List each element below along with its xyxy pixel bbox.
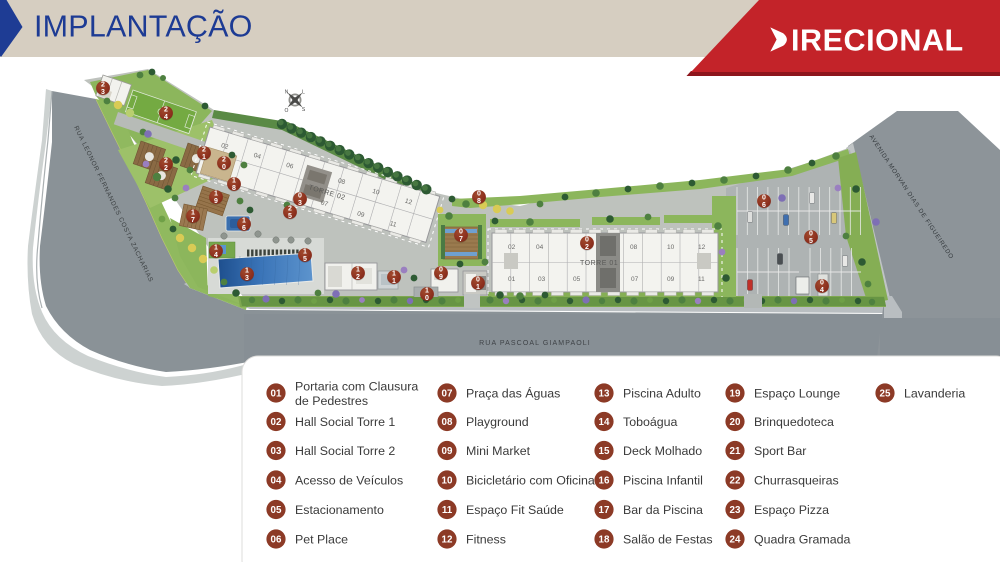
- svg-text:Piscina Infantil: Piscina Infantil: [623, 473, 703, 487]
- svg-text:8: 8: [477, 198, 481, 205]
- svg-text:10: 10: [442, 475, 453, 486]
- svg-text:IMPLANTAÇÃO: IMPLANTAÇÃO: [34, 9, 253, 44]
- svg-text:Espaço Pizza: Espaço Pizza: [754, 503, 829, 517]
- svg-text:1: 1: [303, 249, 307, 256]
- svg-text:1: 1: [214, 245, 218, 252]
- svg-text:2: 2: [202, 147, 206, 154]
- svg-text:2: 2: [164, 158, 168, 165]
- svg-text:17: 17: [599, 505, 610, 516]
- svg-text:IRECIONAL: IRECIONAL: [791, 24, 964, 58]
- svg-text:16: 16: [599, 475, 610, 486]
- svg-text:5: 5: [288, 213, 292, 220]
- svg-text:1: 1: [191, 210, 195, 217]
- svg-text:21: 21: [730, 446, 741, 457]
- svg-text:19: 19: [730, 388, 741, 399]
- svg-text:4: 4: [214, 252, 218, 259]
- svg-text:Quadra Gramada: Quadra Gramada: [754, 532, 851, 546]
- svg-text:5: 5: [303, 256, 307, 263]
- svg-text:2: 2: [101, 82, 105, 89]
- svg-text:10: 10: [667, 244, 675, 251]
- svg-text:Churrasqueiras: Churrasqueiras: [754, 473, 839, 487]
- svg-text:11: 11: [698, 276, 705, 283]
- svg-text:1: 1: [232, 178, 236, 185]
- svg-text:de Pedestres: de Pedestres: [295, 394, 368, 408]
- svg-text:0: 0: [762, 195, 766, 202]
- svg-text:3: 3: [101, 89, 105, 96]
- svg-text:Sport Bar: Sport Bar: [754, 444, 806, 458]
- svg-text:24: 24: [730, 534, 741, 545]
- svg-text:01: 01: [271, 388, 282, 399]
- svg-text:03: 03: [271, 446, 282, 457]
- svg-text:07: 07: [442, 388, 453, 399]
- svg-text:0: 0: [820, 280, 824, 287]
- svg-text:04: 04: [271, 475, 282, 486]
- svg-text:2: 2: [164, 165, 168, 172]
- svg-text:7: 7: [191, 217, 195, 224]
- svg-text:Bicicletário com Oficina: Bicicletário com Oficina: [466, 473, 595, 487]
- svg-text:9: 9: [439, 274, 443, 281]
- svg-text:Acesso de Veículos: Acesso de Veículos: [295, 473, 403, 487]
- svg-text:1: 1: [245, 268, 249, 275]
- svg-text:20: 20: [730, 417, 741, 428]
- svg-text:2: 2: [585, 244, 589, 251]
- svg-text:Espaço Fit Saúde: Espaço Fit Saúde: [466, 503, 564, 517]
- svg-text:01: 01: [508, 276, 516, 283]
- svg-text:Salão de Festas: Salão de Festas: [623, 532, 713, 546]
- svg-text:5: 5: [809, 238, 813, 245]
- svg-text:Toboágua: Toboágua: [623, 415, 678, 429]
- svg-text:1: 1: [214, 191, 218, 198]
- svg-text:Pet Place: Pet Place: [295, 532, 348, 546]
- svg-text:6: 6: [242, 225, 246, 232]
- svg-text:2: 2: [164, 107, 168, 114]
- svg-text:0: 0: [425, 295, 429, 302]
- svg-text:RUA PASCOAL GIAMPAOLI: RUA PASCOAL GIAMPAOLI: [479, 340, 591, 347]
- svg-text:Bar da Piscina: Bar da Piscina: [623, 503, 703, 517]
- svg-text:0: 0: [476, 277, 480, 284]
- svg-text:Hall Social Torre 1: Hall Social Torre 1: [295, 415, 395, 429]
- svg-text:7: 7: [459, 236, 463, 243]
- svg-text:1: 1: [392, 271, 396, 278]
- svg-text:Playground: Playground: [466, 415, 529, 429]
- svg-text:07: 07: [631, 276, 639, 283]
- svg-text:08: 08: [442, 417, 453, 428]
- svg-text:1: 1: [425, 288, 429, 295]
- svg-text:22: 22: [730, 475, 741, 486]
- svg-text:Piscina Adulto: Piscina Adulto: [623, 386, 701, 400]
- svg-text:Estacionamento: Estacionamento: [295, 503, 384, 517]
- svg-text:1: 1: [202, 154, 206, 161]
- svg-text:1: 1: [392, 278, 396, 285]
- svg-text:14: 14: [599, 417, 610, 428]
- svg-text:23: 23: [730, 505, 741, 516]
- svg-text:Praça das Águas: Praça das Águas: [466, 385, 560, 400]
- svg-text:13: 13: [599, 388, 610, 399]
- svg-text:0: 0: [477, 191, 481, 198]
- svg-text:09: 09: [667, 276, 675, 283]
- svg-text:1: 1: [356, 267, 360, 274]
- svg-text:Mini Market: Mini Market: [466, 444, 531, 458]
- svg-text:12: 12: [442, 534, 453, 545]
- svg-text:Brinquedoteca: Brinquedoteca: [754, 415, 834, 429]
- svg-text:04: 04: [536, 244, 544, 251]
- svg-text:Espaço Lounge: Espaço Lounge: [754, 386, 840, 400]
- svg-text:N: N: [285, 90, 289, 96]
- svg-text:0: 0: [809, 231, 813, 238]
- svg-text:1: 1: [476, 284, 480, 291]
- svg-text:2: 2: [356, 274, 360, 281]
- svg-text:05: 05: [573, 276, 581, 283]
- svg-text:15: 15: [599, 446, 610, 457]
- svg-text:4: 4: [820, 287, 824, 294]
- svg-text:8: 8: [232, 185, 236, 192]
- svg-text:06: 06: [271, 534, 282, 545]
- svg-text:02: 02: [271, 417, 282, 428]
- svg-text:Deck Molhado: Deck Molhado: [623, 444, 702, 458]
- svg-text:1: 1: [242, 218, 246, 225]
- svg-text:L: L: [302, 90, 305, 96]
- svg-text:9: 9: [214, 198, 218, 205]
- svg-text:12: 12: [698, 244, 706, 251]
- svg-text:03: 03: [538, 276, 546, 283]
- svg-text:TORRE 01: TORRE 01: [580, 260, 618, 267]
- svg-text:Fitness: Fitness: [466, 532, 506, 546]
- svg-text:3: 3: [298, 200, 302, 207]
- svg-text:0: 0: [459, 229, 463, 236]
- svg-text:0: 0: [298, 193, 302, 200]
- svg-text:4: 4: [164, 114, 168, 121]
- svg-text:08: 08: [630, 244, 638, 251]
- svg-text:Portaria com Clausura: Portaria com Clausura: [295, 380, 418, 394]
- svg-text:02: 02: [508, 244, 516, 251]
- svg-text:0: 0: [439, 267, 443, 274]
- svg-text:6: 6: [762, 202, 766, 209]
- svg-text:09: 09: [442, 446, 453, 457]
- svg-text:0: 0: [585, 237, 589, 244]
- svg-text:Lavanderia: Lavanderia: [904, 386, 965, 400]
- svg-text:18: 18: [599, 534, 610, 545]
- svg-text:05: 05: [271, 505, 282, 516]
- svg-text:25: 25: [880, 388, 891, 399]
- svg-text:11: 11: [442, 505, 453, 516]
- svg-text:2: 2: [222, 157, 226, 164]
- svg-text:3: 3: [245, 275, 249, 282]
- svg-text:0: 0: [222, 164, 226, 171]
- svg-text:O: O: [285, 108, 289, 114]
- svg-text:2: 2: [288, 206, 292, 213]
- svg-text:Hall Social Torre 2: Hall Social Torre 2: [295, 444, 395, 458]
